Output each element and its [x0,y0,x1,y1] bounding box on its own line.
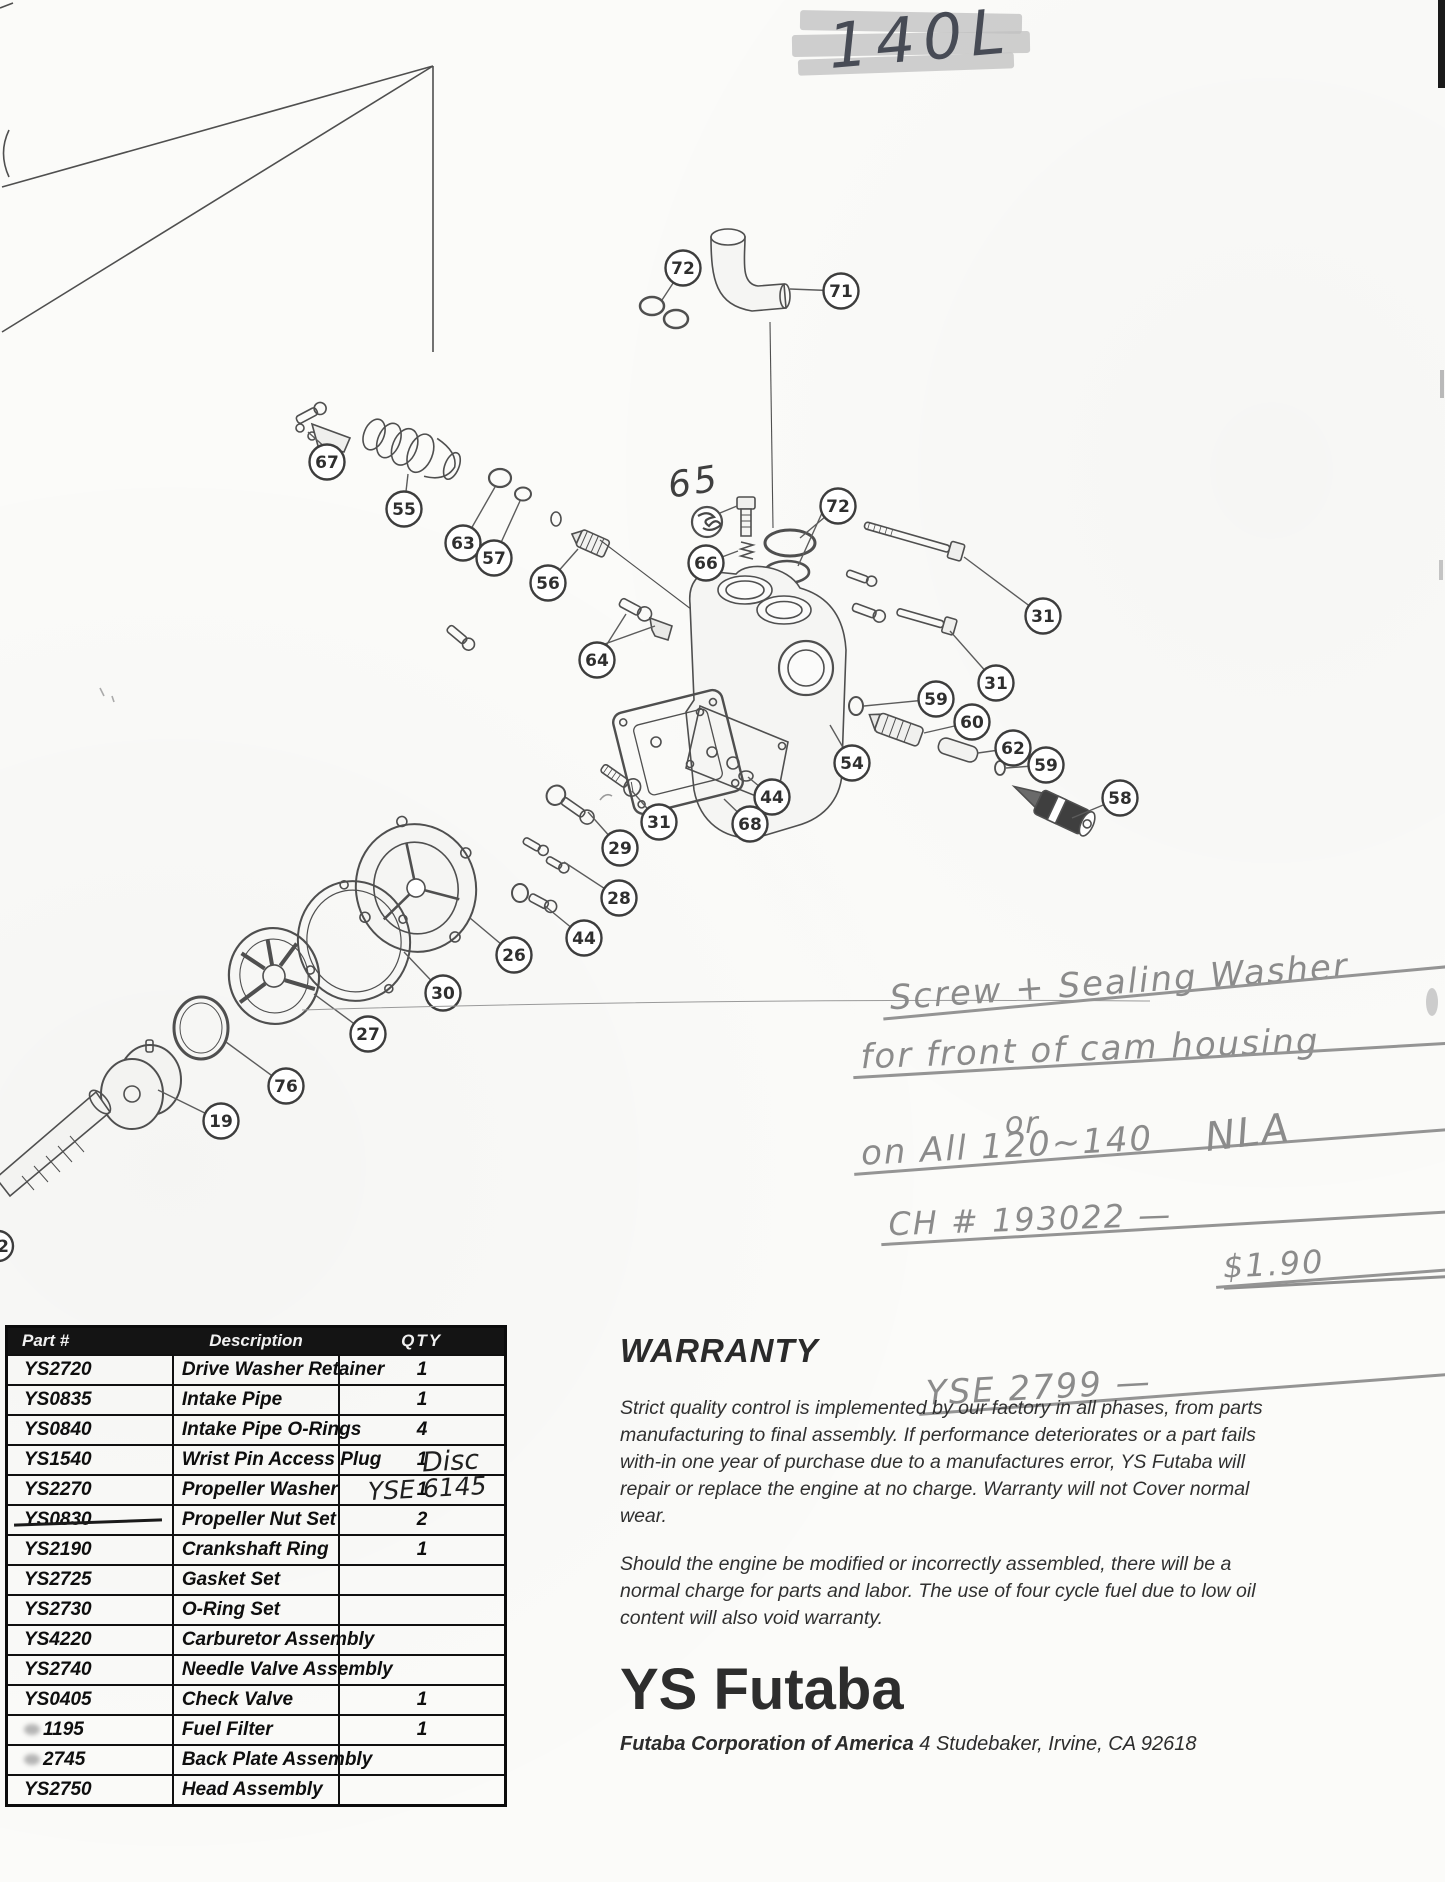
description-cell: Intake Pipe O-Rings [173,1415,339,1445]
part-number: 2745 [43,1749,85,1770]
callout-number: 44 [572,929,596,949]
callout-number: 28 [607,889,631,909]
table-row: YS2740Needle Valve Assembly [7,1655,506,1685]
table-row: YS0835Intake Pipe1 [7,1385,506,1415]
table-row: YS0840Intake Pipe O-Rings4 [7,1415,506,1445]
qty-cell [339,1595,505,1625]
handwritten-65: 65 [665,458,723,507]
description-cell: Drive Washer Retainer [173,1355,339,1385]
qty-cell [339,1775,505,1806]
callout-number: 19 [209,1112,233,1132]
description-cell: Check Valve [173,1685,339,1715]
description-cell: Propeller Washer [173,1475,339,1505]
part-number: YS2730 [24,1599,92,1620]
callout-number: 31 [984,674,1008,694]
callout-number: 71 [829,282,853,302]
scan-wedge-lines [0,3,433,352]
callout-number: 60 [960,713,984,733]
ys-futaba-logo: YS Futaba [620,1656,1275,1723]
qty-cell: 1 [339,1715,505,1745]
table-row: 2745Back Plate Assembly [7,1745,506,1775]
description-cell: Gasket Set [173,1565,339,1595]
table-row: YS0830Propeller Nut Set2 [7,1505,506,1535]
partial-callout-number: 2 [0,1237,9,1257]
qty-cell: 2 [339,1505,505,1535]
table-row: YS4220Carburetor Assembly [7,1625,506,1655]
part-number-cell: YS2720 [7,1355,173,1385]
header-qty: QTY [339,1327,505,1356]
part-number-cell: YS0835 [7,1385,173,1415]
header-description: Description [173,1327,339,1356]
parts-table: Part # Description QTY YS2720Drive Washe… [5,1325,507,1807]
table-row: YS2750Head Assembly [7,1775,506,1806]
part-number-cell: YS0840 [7,1415,173,1445]
description-cell: Fuel Filter [173,1715,339,1745]
callout-number: 30 [431,984,455,1004]
ink-smudge [24,1754,40,1765]
callout-number: 55 [392,500,416,520]
part-number-cell: YS1540 [7,1445,173,1475]
callout-number: 58 [1108,789,1132,809]
table-row: YS2730O-Ring Set [7,1595,506,1625]
callout-number: 63 [451,534,475,554]
part-number-cell: 2745 [7,1745,173,1775]
callout-number: 76 [274,1077,298,1097]
callout-number: 27 [356,1025,380,1045]
scanned-page: 7271675563575666723131596062595854446864… [0,0,1445,1882]
part-number-cell: 1195 [7,1715,173,1745]
part-number: 1195 [43,1719,84,1740]
qty-cell: 1 [339,1535,505,1565]
part-number: YS2725 [24,1569,92,1590]
header-part-number: Part # [7,1327,173,1356]
callout-number: 44 [760,788,784,808]
description-cell: Propeller Nut Set [173,1505,339,1535]
part-number-cell: YS2725 [7,1565,173,1595]
callout-number: 29 [608,839,632,859]
callout-number: 67 [315,453,339,473]
table-row: 1195Fuel Filter1 [7,1715,506,1745]
part-number-cell: YS2730 [7,1595,173,1625]
warranty-title: WARRANTY [620,1332,1275,1370]
qty-cell [339,1565,505,1595]
callout-number: 56 [536,574,560,594]
description-cell: Crankshaft Ring [173,1535,339,1565]
parts-table-body: YS2720Drive Washer Retainer1YS0835Intake… [7,1355,506,1806]
table-row: YS2190Crankshaft Ring1 [7,1535,506,1565]
table-row: YS2725Gasket Set [7,1565,506,1595]
description-cell: Needle Valve Assembly [173,1655,339,1685]
part-number: YS2750 [24,1779,92,1800]
callout-number: 59 [924,690,948,710]
part-number: YS0835 [24,1389,92,1410]
callout-number: 31 [1031,607,1055,627]
part-number: YS2190 [24,1539,92,1560]
part-number: YS0840 [24,1419,92,1440]
handwritten-note-line: or [1005,1106,1040,1141]
callout-number: 59 [1034,756,1058,776]
callout-number: 26 [502,946,526,966]
table-row: YS2720Drive Washer Retainer1 [7,1355,506,1385]
part-number: YS1540 [24,1449,92,1470]
description-cell: Wrist Pin Access Plug [173,1445,339,1475]
callout-number: 68 [738,815,762,835]
part-number: YS2270 [24,1479,92,1500]
part-number: YS0405 [24,1689,92,1710]
part-number-cell: YS0830 [7,1505,173,1535]
table-row: YS0405Check Valve1 [7,1685,506,1715]
handwritten-table-annotation: YSE 6145 [367,1471,487,1506]
warranty-paragraph-1: Strict quality control is implemented by… [620,1395,1275,1530]
callout-number: 66 [694,554,718,574]
company-name: Futaba Corporation of America [620,1733,914,1755]
description-cell: O-Ring Set [173,1595,339,1625]
description-cell: Carburetor Assembly [173,1625,339,1655]
table-header-row: Part # Description QTY [7,1327,506,1356]
part-number: YS4220 [24,1629,92,1650]
company-address: Futaba Corporation of America 4 Studebak… [620,1733,1275,1756]
callout-number: 57 [482,549,506,569]
callout-number: 62 [1001,739,1025,759]
description-cell: Back Plate Assembly [173,1745,339,1775]
partial-callout-balloon: 2 [0,1231,13,1261]
callout-number: 72 [671,259,695,279]
part-number: YS2740 [24,1659,92,1680]
scan-edge-artifacts [1426,0,1445,1016]
part-number: YS2720 [24,1359,92,1380]
part-number-cell: YS4220 [7,1625,173,1655]
part-number-cell: YS0405 [7,1685,173,1715]
callout-number: 31 [647,813,671,833]
callout-number: 72 [826,497,850,517]
callout-number: 54 [840,754,864,774]
company-street: 4 Studebaker, Irvine, CA 92618 [914,1733,1197,1755]
part-number-cell: YS2750 [7,1775,173,1806]
qty-cell: 4 [339,1415,505,1445]
qty-cell: 1 [339,1685,505,1715]
description-cell: Head Assembly [173,1775,339,1806]
part-number: YS0830 [24,1509,92,1530]
part-number-cell: YS2270 [7,1475,173,1505]
warranty-section: WARRANTY Strict quality control is imple… [620,1332,1275,1756]
ink-smudge [24,1724,40,1735]
part-number-cell: YS2740 [7,1655,173,1685]
qty-cell: 1 [339,1385,505,1415]
part-number-cell: YS2190 [7,1535,173,1565]
description-cell: Intake Pipe [173,1385,339,1415]
warranty-paragraph-2: Should the engine be modified or incorre… [620,1551,1275,1632]
callout-number: 64 [585,651,609,671]
